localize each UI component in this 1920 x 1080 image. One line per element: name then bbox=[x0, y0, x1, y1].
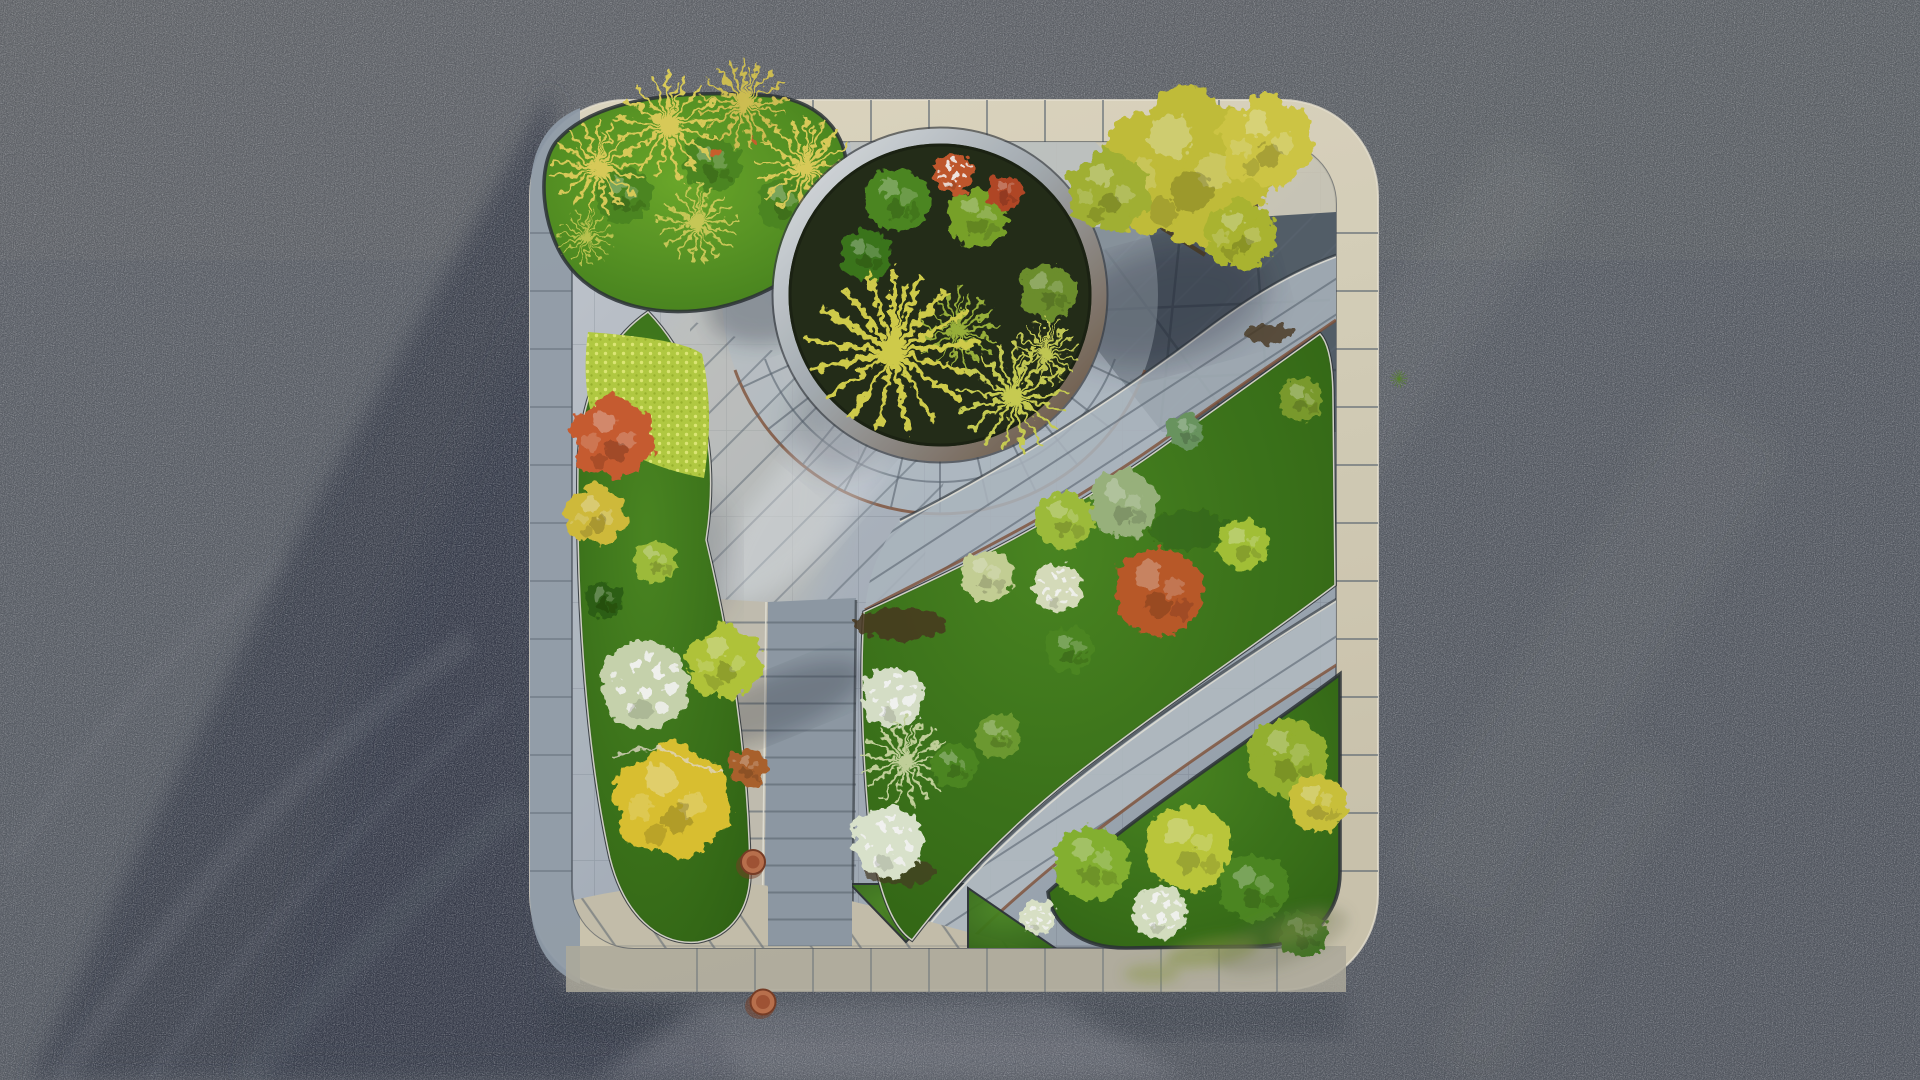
garden-plaza-scene bbox=[0, 0, 1920, 1080]
aerial-photo: Aerial top-down view of a rounded-square… bbox=[0, 0, 1920, 1080]
vignette bbox=[0, 0, 1920, 1080]
